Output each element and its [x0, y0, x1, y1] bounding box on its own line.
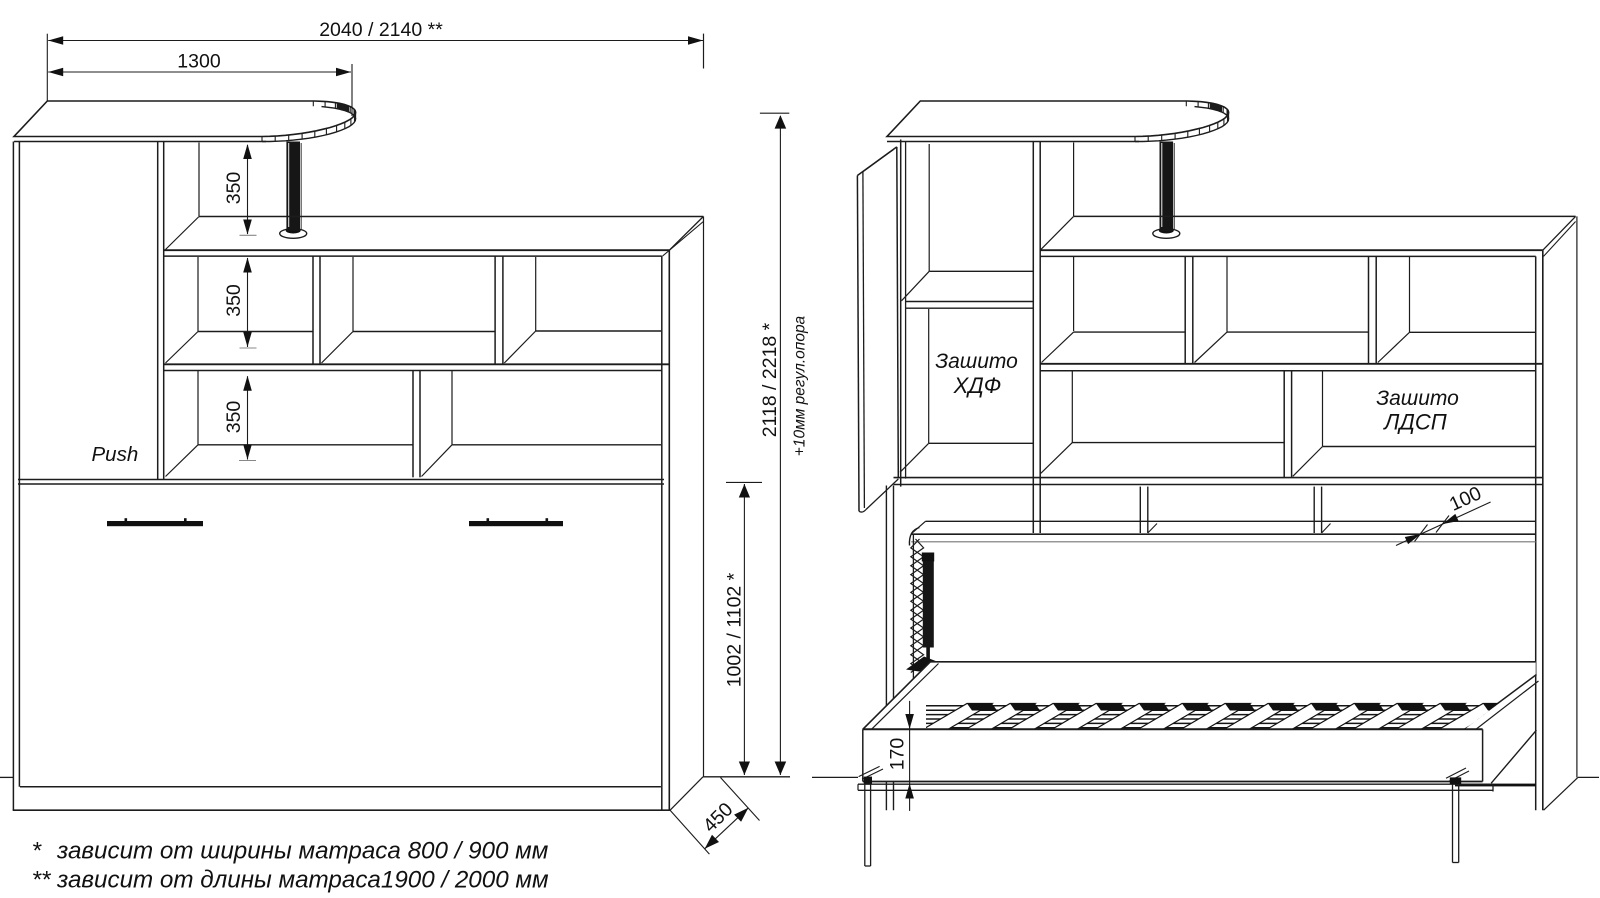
svg-text:Push: Push — [92, 443, 139, 466]
svg-text:1002 / 1102 *: 1002 / 1102 * — [724, 572, 746, 687]
svg-text:350: 350 — [223, 284, 245, 317]
svg-text:зависит от ширины матраса 800: зависит от ширины матраса 800 / 900 мм — [56, 837, 549, 864]
svg-text:Зашито: Зашито — [935, 350, 1018, 373]
svg-text:*: * — [32, 837, 43, 864]
svg-text:350: 350 — [223, 401, 245, 434]
svg-text:2118 / 2218 *: 2118 / 2218 * — [759, 322, 781, 437]
svg-text:1300: 1300 — [177, 51, 221, 73]
svg-text:**: ** — [32, 866, 52, 893]
svg-text:+10мм регул.опора: +10мм регул.опора — [792, 315, 809, 456]
svg-text:зависит от длины матраса1900 /: зависит от длины матраса1900 / 2000 мм — [56, 866, 549, 893]
svg-text:350: 350 — [223, 172, 245, 205]
svg-text:Зашито: Зашито — [1376, 387, 1459, 410]
svg-text:2040 / 2140 **: 2040 / 2140 ** — [319, 19, 443, 41]
svg-text:ЛДСП: ЛДСП — [1382, 410, 1446, 435]
svg-text:ХДФ: ХДФ — [953, 373, 1002, 398]
svg-text:170: 170 — [887, 738, 909, 771]
